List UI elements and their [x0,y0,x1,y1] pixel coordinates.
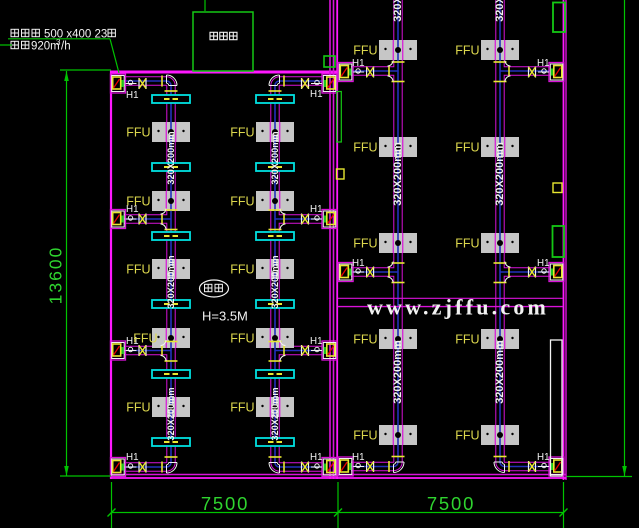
svg-text:FFU: FFU [455,333,479,347]
svg-text:FFU: FFU [353,333,377,347]
svg-text:www.zjffu.com: www.zjffu.com [367,295,549,320]
svg-text:H1: H1 [352,258,365,269]
svg-text:H1: H1 [126,452,139,463]
svg-text:320X200mm: 320X200mm [270,387,280,440]
svg-text:H1: H1 [352,452,365,463]
svg-text:7500: 7500 [427,493,475,514]
svg-text:320X200mm: 320X200mm [494,142,506,206]
svg-text:FFU: FFU [230,332,254,346]
svg-text:320X200mm: 320X200mm [166,131,176,184]
svg-text:H1: H1 [310,336,323,347]
svg-text:H1: H1 [352,58,365,69]
svg-text:7500: 7500 [201,493,249,514]
svg-text:FFU: FFU [455,237,479,251]
svg-text:FFU: FFU [455,429,479,443]
svg-text:H1: H1 [537,258,550,269]
svg-text:FFU: FFU [230,126,254,140]
svg-text:H=3.5M: H=3.5M [202,309,248,324]
svg-text:320X200mm: 320X200mm [166,387,176,440]
svg-text:FFU: FFU [230,263,254,277]
svg-text:FFU: FFU [353,237,377,251]
svg-text:320X200mm: 320X200mm [166,255,176,308]
svg-text:FFU: FFU [126,401,150,415]
svg-text:/h: /h [61,41,71,53]
svg-text:FFU: FFU [353,44,377,58]
svg-text:H1: H1 [126,90,139,101]
svg-text:H1: H1 [310,204,323,215]
svg-text:FFU: FFU [455,44,479,58]
svg-text:320X200mm: 320X200mm [270,131,280,184]
svg-text:FFU: FFU [353,141,377,155]
svg-text:H1: H1 [537,58,550,69]
svg-text:FFU: FFU [230,401,254,415]
svg-text:H1: H1 [537,452,550,463]
svg-text:H1: H1 [310,452,323,463]
svg-text:320X200mm: 320X200mm [270,255,280,308]
svg-text:FFU: FFU [126,195,150,209]
svg-text:320X200mm: 320X200mm [392,142,404,206]
svg-text:320X200mm: 320X200mm [494,0,506,22]
svg-text:FFU: FFU [126,263,150,277]
svg-text:FFU: FFU [133,332,157,346]
svg-text:320X200mm: 320X200mm [392,340,404,404]
svg-text:13600: 13600 [46,246,66,305]
svg-text:320X200mm: 320X200mm [392,0,404,22]
svg-text:H1: H1 [310,89,323,100]
svg-text:FFU: FFU [230,195,254,209]
svg-text:320X200mm: 320X200mm [494,340,506,404]
svg-text:FFU: FFU [126,126,150,140]
svg-text:FFU: FFU [455,141,479,155]
svg-text:FFU: FFU [353,429,377,443]
